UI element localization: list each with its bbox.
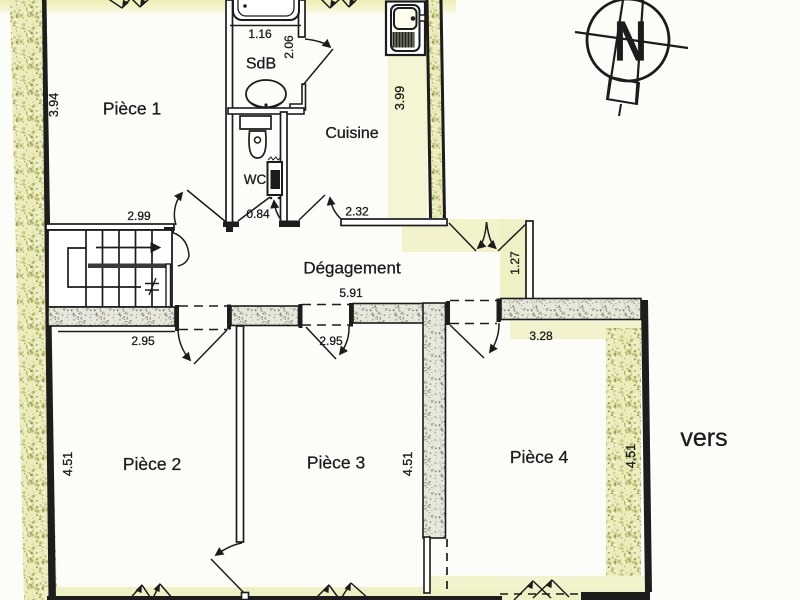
svg-text:Dégagement: Dégagement [303, 259, 401, 278]
svg-text:Pièce 3: Pièce 3 [307, 453, 365, 473]
svg-text:2.95: 2.95 [319, 334, 343, 348]
svg-text:2.95: 2.95 [131, 334, 155, 348]
svg-text:4.51: 4.51 [624, 444, 638, 468]
svg-text:SdB: SdB [246, 56, 276, 73]
svg-text:WC: WC [244, 172, 267, 187]
svg-text:4.51: 4.51 [61, 452, 75, 476]
svg-text:2.32: 2.32 [345, 205, 369, 219]
svg-text:Pièce 2: Pièce 2 [123, 454, 181, 474]
svg-text:3.94: 3.94 [47, 93, 61, 117]
svg-text:vers: vers [680, 424, 727, 452]
svg-text:4.51: 4.51 [401, 452, 415, 476]
svg-text:1.27: 1.27 [508, 251, 522, 275]
svg-text:2.06: 2.06 [282, 35, 296, 59]
svg-text:3.99: 3.99 [393, 86, 407, 110]
svg-text:0.84: 0.84 [246, 207, 270, 221]
svg-text:2.99: 2.99 [127, 209, 151, 223]
svg-text:5.91: 5.91 [339, 286, 363, 300]
svg-text:N: N [614, 9, 647, 73]
svg-text:Pièce 4: Pièce 4 [510, 447, 569, 467]
svg-text:Pièce 1: Pièce 1 [103, 99, 161, 119]
svg-text:3.28: 3.28 [529, 329, 553, 343]
svg-text:Cuisine: Cuisine [325, 125, 378, 142]
svg-text:1.16: 1.16 [248, 27, 272, 41]
